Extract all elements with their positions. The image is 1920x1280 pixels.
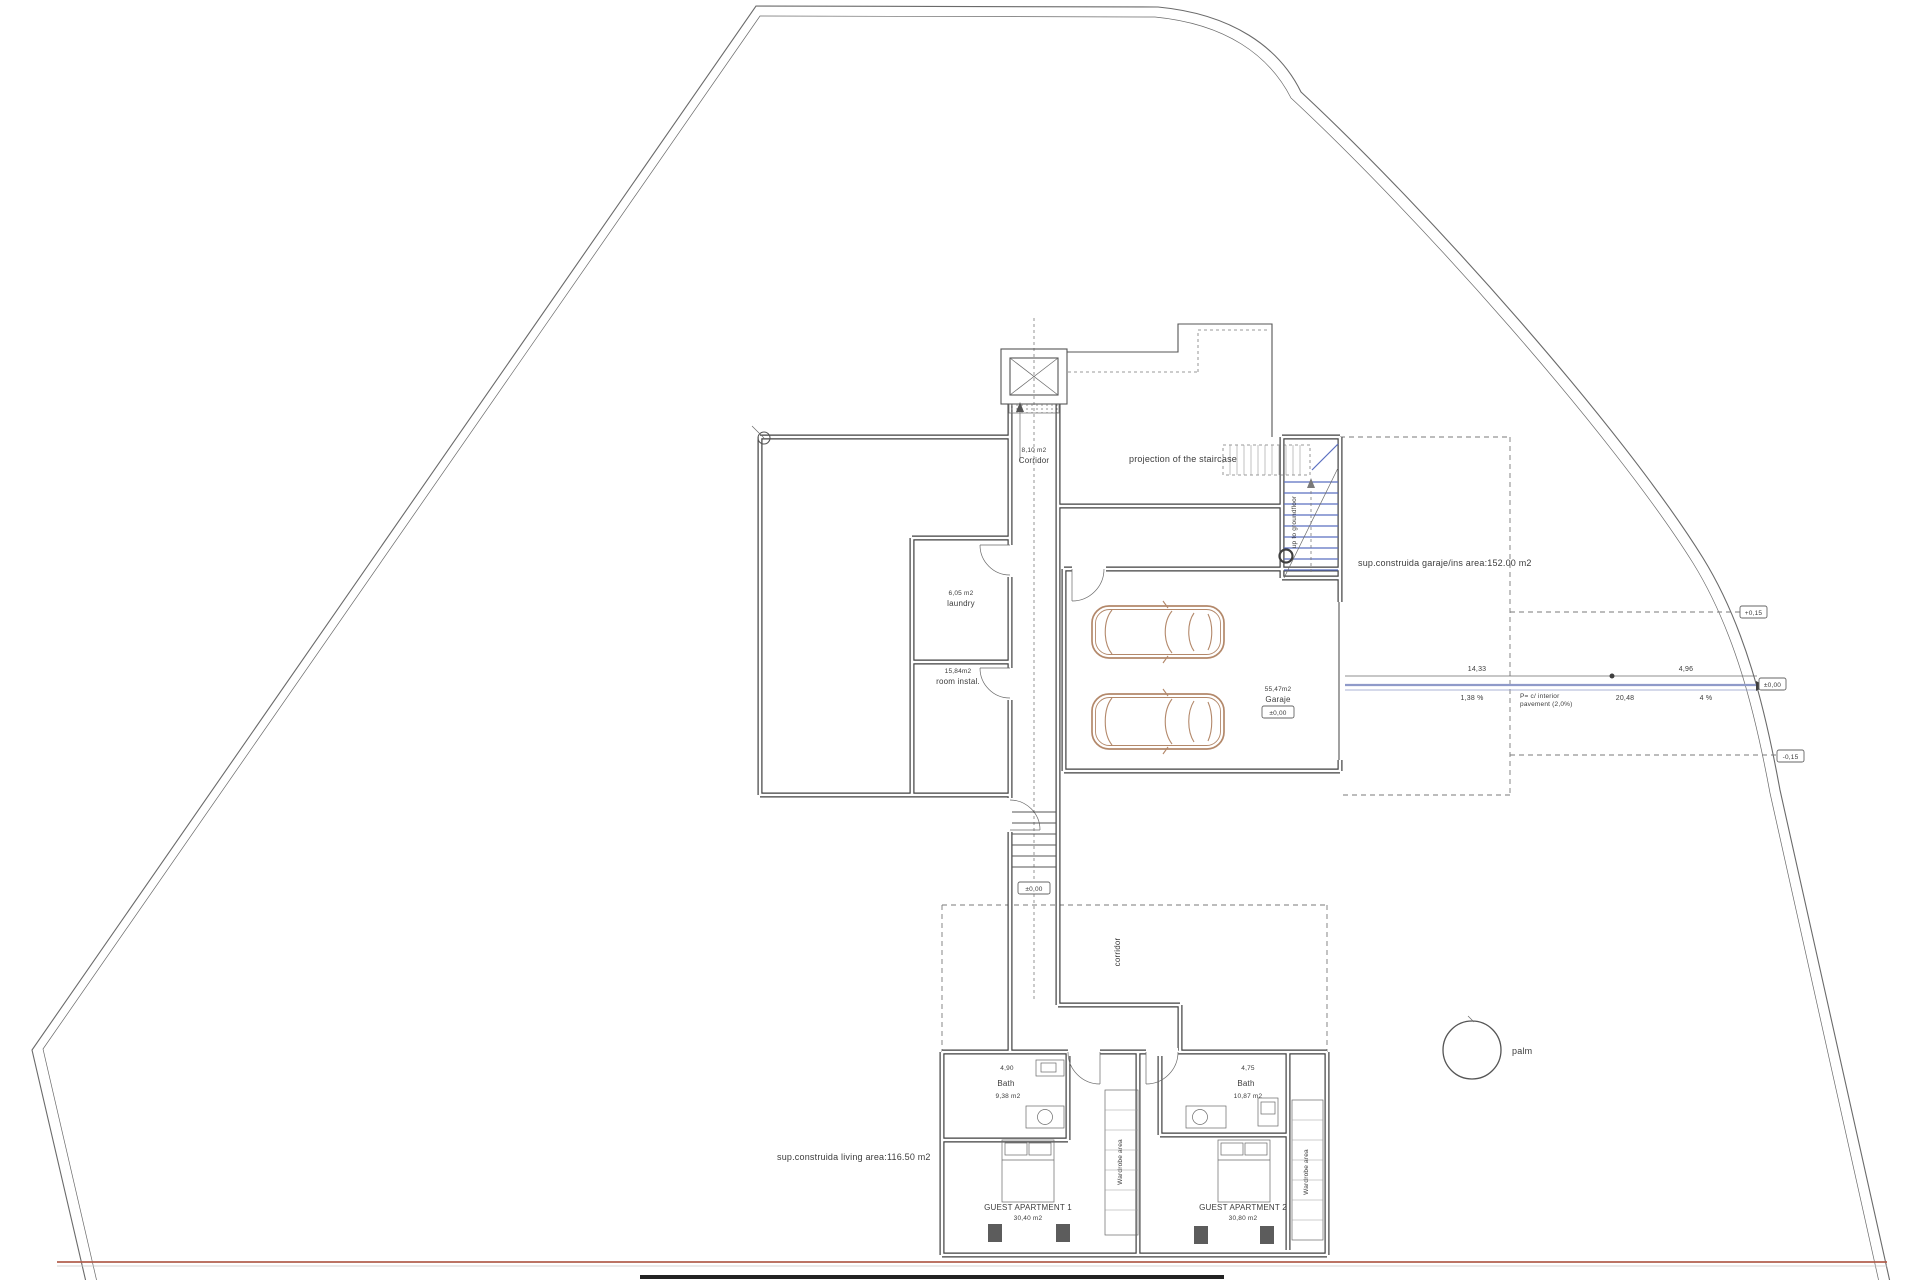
plot-boundary xyxy=(32,6,1890,1280)
drive-note-1: P= c/ interior xyxy=(1520,693,1560,700)
bath1-dim: 4,90 xyxy=(1000,1065,1014,1072)
bath1-fixtures xyxy=(1026,1060,1064,1128)
bath2-dim: 4,75 xyxy=(1241,1065,1255,1072)
garage-note: sup.construida garaje/ins area:152.00 m2 xyxy=(1358,558,1532,568)
palm-label: palm xyxy=(1512,1046,1532,1056)
drive-length: 20,48 xyxy=(1616,695,1635,702)
driveway: 14,33 4,96 1,38 % P= c/ interior pavemen… xyxy=(1345,666,1766,708)
wardrobe2-label: Wardrobe area xyxy=(1303,1149,1310,1195)
corridor-label: Corridor xyxy=(1019,456,1050,465)
corridor-area: 8,10 m2 xyxy=(1022,447,1047,454)
svg-text:+0,15: +0,15 xyxy=(1745,610,1763,617)
apt2-label: GUEST APARTMENT 2 xyxy=(1199,1203,1287,1212)
room-labels: projection of the staircase 8,10 m2 Corr… xyxy=(777,447,1532,1222)
laundry-area: 6,05 m2 xyxy=(949,590,974,597)
bath1-area: 9,38 m2 xyxy=(996,1093,1021,1100)
drive-dim-1: 14,33 xyxy=(1468,666,1487,673)
svg-text:-0,15: -0,15 xyxy=(1783,754,1799,761)
apt2-area: 30,80 m2 xyxy=(1229,1215,1258,1222)
street-lines xyxy=(57,1262,1887,1277)
stairs-direction-label: up to groundfloor xyxy=(1291,495,1298,548)
projection-staircase-label: projection of the staircase xyxy=(1129,454,1237,464)
floor-plan-drawing: up to groundfloor 14,33 4,96 xyxy=(0,0,1920,1280)
bed-apartment-1 xyxy=(1002,1140,1054,1202)
garage-label: Garaje xyxy=(1265,695,1291,704)
drive-dim-2: 4,96 xyxy=(1679,666,1693,673)
svg-text:±0,00: ±0,00 xyxy=(1764,682,1781,689)
living-note: sup.construida living area:116.50 m2 xyxy=(777,1152,931,1162)
drive-slope-2: 4 % xyxy=(1700,695,1713,702)
corridor-lower-label: corridor xyxy=(1113,938,1122,967)
garage-level-label: ±0,00 xyxy=(1269,710,1286,717)
floor-plan-canvas: up to groundfloor 14,33 4,96 xyxy=(0,0,1920,1280)
instal-label: room instal. xyxy=(936,677,980,686)
wall-layer xyxy=(760,404,1344,1255)
palm-tree: palm xyxy=(1443,1016,1532,1079)
drive-slope-1: 1,38 % xyxy=(1461,695,1484,702)
marker-low: -0,15 xyxy=(1777,750,1804,762)
apt1-area: 30,40 m2 xyxy=(1014,1215,1043,1222)
roof-notch-outline xyxy=(1067,324,1272,437)
stair-up-arrow xyxy=(1307,478,1315,488)
bath2-label: Bath xyxy=(1237,1079,1254,1088)
stairs-level-label: ±0,00 xyxy=(1025,886,1042,893)
marker-top: +0,15 xyxy=(1740,606,1767,618)
bath2-fixtures xyxy=(1186,1098,1278,1128)
garage-area: 55,47m2 xyxy=(1265,686,1292,693)
apt1-label: GUEST APARTMENT 1 xyxy=(984,1203,1072,1212)
wardrobe1-label: Wardrobe area xyxy=(1117,1139,1124,1185)
garage-car-1 xyxy=(1092,601,1224,663)
bed-apartment-2 xyxy=(1218,1140,1270,1202)
bath2-area: 10,87 m2 xyxy=(1234,1093,1263,1100)
furniture-blocks xyxy=(988,1224,1274,1244)
garage-car-2 xyxy=(1092,689,1224,754)
marker-mid: ±0,00 xyxy=(1759,678,1786,690)
drive-note-2: pavement (2,0%) xyxy=(1520,701,1573,708)
instal-area: 15,84m2 xyxy=(945,668,972,675)
bath1-label: Bath xyxy=(997,1079,1014,1088)
laundry-label: laundry xyxy=(947,599,975,608)
